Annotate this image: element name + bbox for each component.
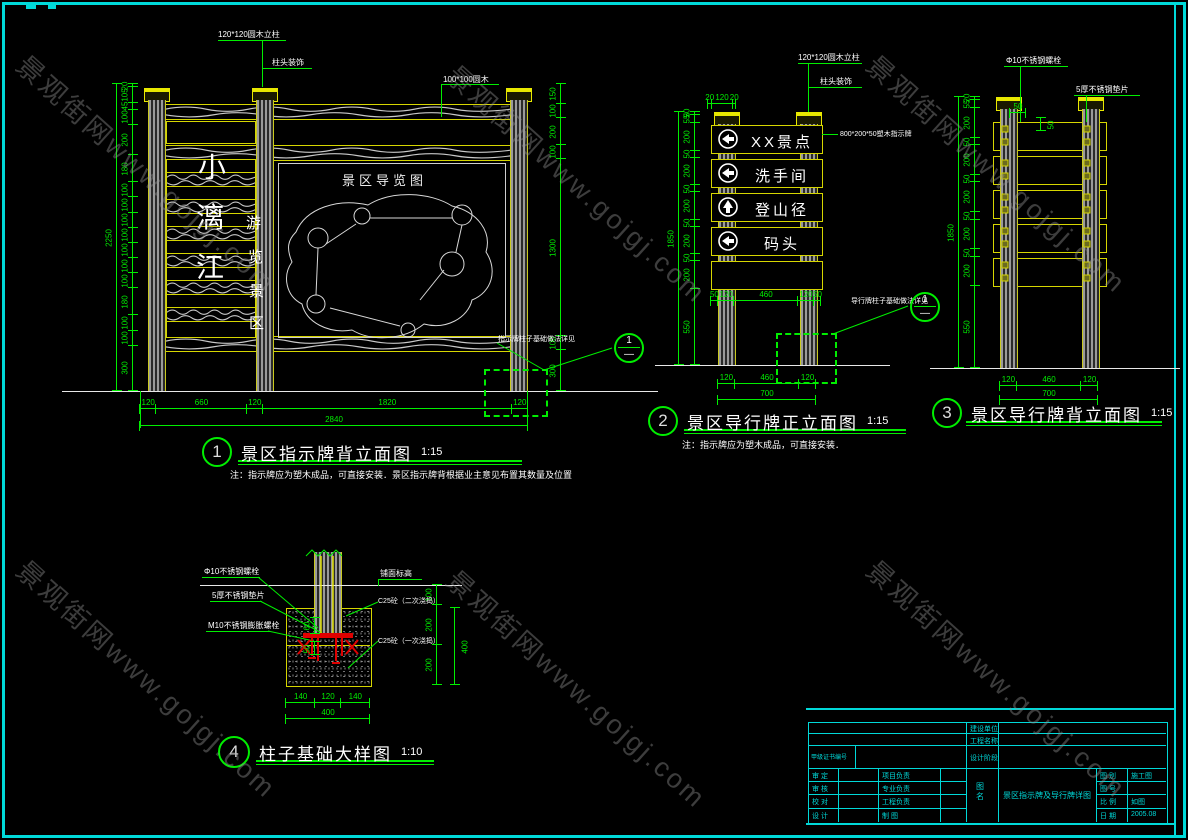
tb-row-label: 审 定 [812, 771, 828, 781]
post-label: 120*120圆木立柱 [798, 52, 860, 63]
tb-cert: 甲级证书编号 [811, 752, 847, 761]
anchor-label: M10不锈钢膨胀螺栓 [208, 620, 280, 631]
panel-text: 码头 [744, 233, 820, 254]
dim-60: 60 [314, 618, 315, 634]
tb-row-label: 设 计 [812, 811, 828, 821]
cap-label: 柱头装饰 [272, 57, 304, 68]
dim-row-bottom: 140 120 140 [286, 702, 370, 703]
drawing-number: 1 [202, 437, 232, 467]
board-label: 800*200*50塑木指示牌 [840, 129, 912, 139]
drawing-scale: 1:10 [401, 746, 422, 758]
dim-50b: 50 [1040, 118, 1041, 131]
plate-label: 5厚不锈钢垫片 [1076, 84, 1128, 95]
tb-row-label: 审 核 [812, 784, 828, 794]
bolt-label: Φ10不锈钢螺栓 [204, 566, 259, 577]
map-panel-title: 景区导览图 [342, 170, 427, 189]
tb-row-label: 项目负责 [882, 771, 910, 781]
drawing3-title: 3 景区导行牌背立面图 1:15 [932, 398, 1172, 428]
detail-number: 1 [626, 335, 632, 346]
drawing-title-text: 景区指示牌背立面图 [241, 440, 412, 465]
drawing-number: 2 [648, 406, 678, 436]
tb-owner-label: 建设单位 [970, 724, 998, 734]
dim-50: 50 [1010, 112, 1026, 113]
tb-scale-value: 如图 [1131, 797, 1145, 807]
dim-overall-width: 400 [286, 718, 370, 719]
drawing-scale: 1:15 [421, 446, 442, 458]
c25-first-pour-label: C25砼（一次浇捣） [378, 636, 440, 646]
post-label: 120*120圆木立柱 [218, 29, 280, 40]
detail-number: 1 [922, 294, 928, 305]
arrow-up-icon [717, 196, 739, 218]
drawing1-title: 1 景区指示牌背立面图 1:15 [202, 437, 442, 467]
panel-text: 登山径 [744, 199, 820, 220]
callout-label: 指示牌柱子基础做法详见 [498, 334, 575, 344]
cad-canvas: { "watermark": {"text": "景观街网www.gojgj.c… [0, 0, 1188, 840]
drawing1-note: 注：指示牌应为塑木成品，可直接安装．景区指示牌背根据业主意见布置其数量及位置 [230, 468, 572, 481]
arrow-left-icon [717, 230, 739, 252]
tb-row-label: 工程负责 [882, 797, 910, 807]
tb-row-label: 专业负责 [882, 784, 910, 794]
drawing-title-text: 柱子基础大样图 [259, 740, 392, 765]
tb-row-label: 校 对 [812, 797, 828, 807]
panel-text: XX景点 [744, 131, 820, 152]
tb-sheet-name-label: 图名 [976, 782, 988, 802]
bolt-label: Φ10不锈钢螺栓 [1006, 55, 1061, 66]
c25-second-pour-label: C25砼（二次浇捣） [378, 596, 440, 606]
sign-char: 小 [198, 146, 226, 186]
plate-label: 5厚不锈钢垫片 [212, 590, 264, 601]
panel-text: 洗手间 [744, 165, 820, 186]
tb-project-label: 工程名称 [970, 736, 998, 746]
foundation-ref-box [484, 369, 548, 417]
sign-char: 区 [249, 312, 264, 333]
drawing-title-text: 景区导行牌正立面图 [687, 409, 858, 434]
tb-sheet-name: 景区指示牌及导行牌详图 [1000, 790, 1094, 801]
dim-row-bottom: 120 460 120 [1000, 385, 1098, 386]
foundation-ref-box [776, 333, 837, 384]
drawing2-note: 注：指示牌应为塑木成品，可直接安装． [682, 438, 844, 451]
detail-sheet: — [920, 308, 930, 319]
drawing-title-text: 景区导行牌背立面图 [971, 401, 1142, 426]
tb-date-label: 日 期 [1100, 811, 1116, 821]
detail-bubble: 1— [614, 333, 644, 363]
drawing-scale: 1:15 [867, 415, 888, 427]
dim-overall-depth: 400 [454, 608, 455, 685]
arrow-left-icon [717, 128, 739, 150]
detail-sheet: — [624, 349, 634, 360]
sign-char: 游 [246, 212, 261, 233]
dim-50: 50 [314, 642, 315, 655]
arrow-left-icon [717, 162, 739, 184]
drawing-number: 3 [932, 398, 962, 428]
pavement-label: 铺面标高 [380, 568, 412, 579]
tb-phase-label: 设计阶段 [970, 753, 998, 763]
tb-row-label: 制 图 [882, 811, 898, 821]
tb-date-value: 2005.08 [1131, 811, 1156, 818]
drawing2-title: 2 景区导行牌正立面图 1:15 [648, 406, 888, 436]
detail-bubble: 1— [910, 292, 940, 322]
cap-label: 柱头装饰 [820, 76, 852, 87]
drawing-scale: 1:15 [1151, 407, 1172, 419]
